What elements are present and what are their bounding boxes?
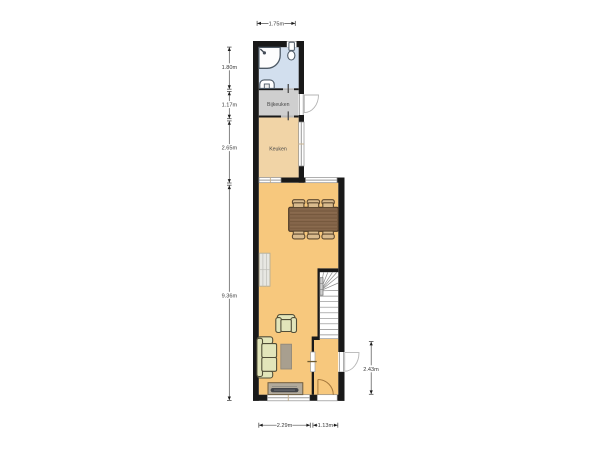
svg-text:1.17m: 1.17m: [222, 103, 238, 109]
svg-text:1.75m: 1.75m: [269, 21, 285, 27]
svg-text:1.80m: 1.80m: [222, 65, 238, 71]
svg-text:2.29m: 2.29m: [277, 423, 293, 429]
svg-text:2.65m: 2.65m: [222, 146, 238, 152]
svg-text:9.36m: 9.36m: [222, 293, 238, 299]
svg-text:2.43m: 2.43m: [363, 367, 379, 373]
svg-text:Bijkeuken: Bijkeuken: [267, 102, 290, 108]
svg-text:Keuken: Keuken: [269, 147, 287, 153]
svg-text:1.13m: 1.13m: [318, 423, 334, 429]
